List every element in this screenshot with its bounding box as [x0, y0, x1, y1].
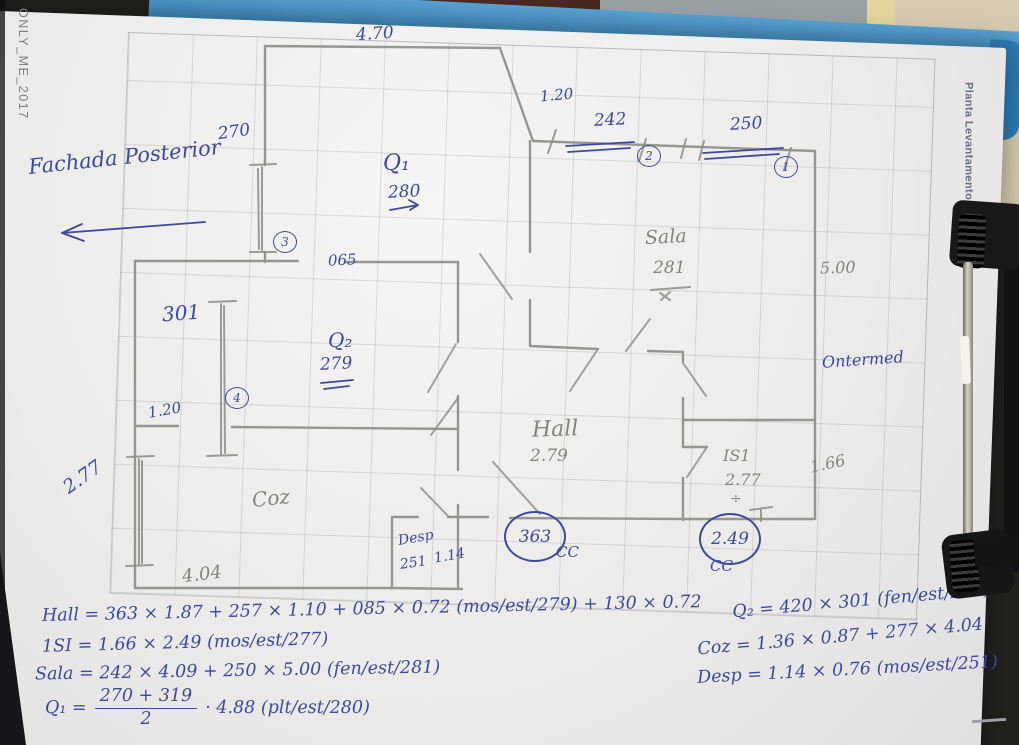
clip-bottom-bar [973, 538, 1019, 567]
formula-q1-lhs: Q₁ = [45, 699, 87, 717]
room-sala-name: Sala [645, 227, 688, 249]
window-ref-3: 3 [273, 231, 297, 253]
window-ref-4: 4 [225, 387, 249, 409]
form-side-label: Planta Levantamento [962, 82, 974, 200]
formula-q1-numerator: 270 + 319 [95, 688, 198, 709]
clipboard-photo: ONLY_ME_2017 Planta Levantamento Fachada… [0, 0, 1019, 745]
formula-q1: Q₁ = 270 + 319 2 · 4.88 (plt/est/280) [45, 688, 370, 728]
dim-window2: 242 [594, 111, 627, 131]
room-is1-name: IS1 [723, 448, 750, 465]
formula-q1-denominator: 2 [140, 709, 151, 729]
room-is1-height: 2.77 [725, 472, 761, 489]
room-hall-name: Hall [532, 417, 579, 442]
dim-top-width: 4.70 [355, 25, 394, 45]
dim-gap-top: 1.20 [539, 87, 574, 106]
dim-sala-width: 5.00 [820, 259, 856, 277]
dim-window1: 250 [730, 115, 763, 135]
room-q1-height: 280 [388, 183, 421, 203]
watermark: ONLY_ME_2017 [16, 8, 29, 120]
window-ref-1: 1 [774, 156, 798, 178]
room-sala-height: 281 [653, 260, 685, 278]
clip-metal-highlight [960, 336, 971, 384]
clip-top-grip [957, 213, 987, 268]
formula-q1-fraction: 270 + 319 2 [95, 688, 198, 728]
clip-metal-lever [963, 262, 973, 546]
formula-q1-rhs: · 4.88 (plt/est/280) [205, 699, 370, 717]
cc2-label: CC [710, 559, 733, 575]
room-coz-name: Coz [251, 486, 291, 511]
dim-window4: 301 [161, 302, 201, 326]
cc1-label: CC [556, 545, 579, 561]
room-q2-height: 279 [320, 355, 353, 375]
dim-door-065: 065 [328, 252, 357, 269]
room-q2-name: Q₂ [328, 330, 352, 351]
window-ref-2: 2 [637, 145, 661, 167]
room-is1-mark: ÷ [730, 492, 742, 507]
room-hall-height: 2.79 [530, 448, 568, 466]
room-q1-name: Q₁ [383, 152, 410, 175]
